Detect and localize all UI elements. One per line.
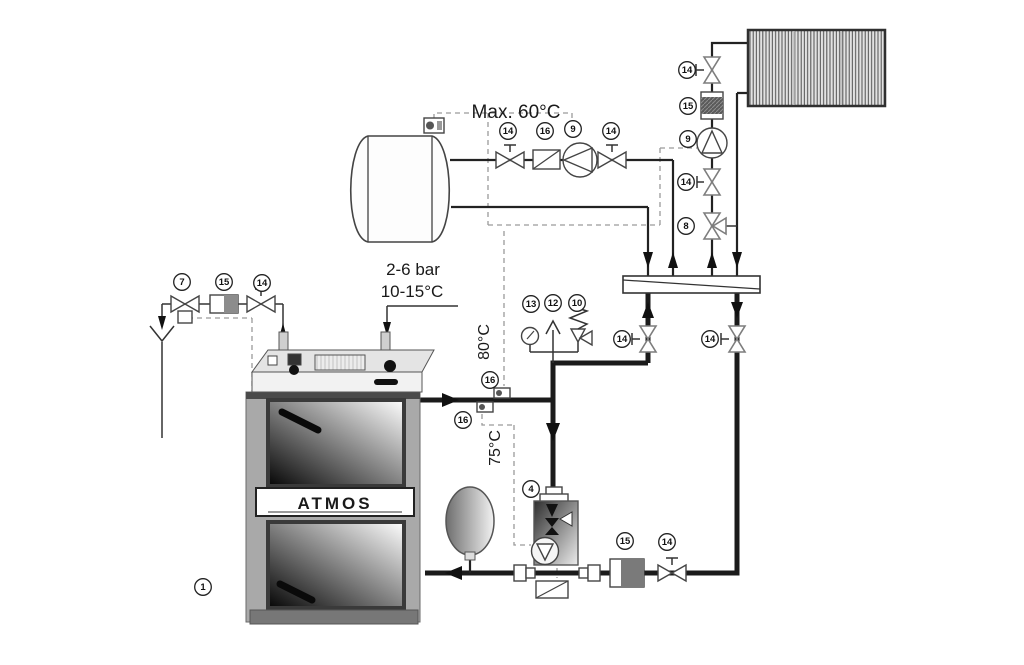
svg-text:1: 1 (200, 582, 206, 593)
laddomat-flow-arrow (546, 423, 560, 441)
supply-to-separator-pipe (553, 292, 648, 400)
svg-text:15: 15 (683, 101, 694, 112)
separator-valve-supply (632, 326, 656, 352)
svg-text:4: 4 (528, 484, 534, 495)
component-label: 16 (455, 412, 472, 429)
boiler-brand-text: ATMOS (297, 494, 372, 513)
component-label: 9 (680, 131, 697, 148)
component-label: 15 (680, 98, 697, 115)
svg-text:13: 13 (526, 299, 537, 310)
pressure-gauge (522, 328, 539, 345)
component-label: 14 (603, 123, 620, 140)
component-label: 13 (523, 296, 540, 313)
svg-text:14: 14 (257, 278, 268, 289)
supply-temp-sensor (494, 388, 510, 398)
radiator-shutoff-valve-top (696, 57, 720, 83)
tank-return-arrow (643, 252, 653, 268)
svg-text:14: 14 (606, 126, 617, 137)
supply-flow-arrow (442, 393, 459, 407)
separator-out-arrow (731, 302, 743, 318)
radiator-shutoff-valve-mid (697, 169, 720, 195)
heating-schematic-page: ATMOS (0, 0, 1024, 660)
svg-text:9: 9 (570, 124, 575, 135)
max-temp-label: Max. 60°C (472, 102, 561, 123)
atmos-nameplate: ATMOS (256, 488, 414, 516)
component-label: 7 (174, 274, 191, 291)
dhw-shutoff-valve-left (496, 145, 524, 168)
supply-temp-label: 80°C (476, 324, 493, 360)
component-label: 4 (523, 481, 540, 498)
component-label: 15 (216, 274, 233, 291)
tank-return-pipe (451, 207, 648, 276)
return-flow-arrow (445, 566, 462, 580)
component-label: 14 (254, 275, 271, 292)
component-label: 12 (545, 295, 562, 312)
hydraulic-separator (623, 276, 760, 293)
cold-water-pipe (387, 306, 458, 322)
expansion-vessel (446, 487, 494, 560)
component-label: 8 (678, 218, 695, 235)
return-temp-sensor (477, 402, 493, 412)
tank-supply-pipe (450, 160, 673, 276)
separator-in-arrow (642, 302, 654, 318)
return-line-filter (610, 559, 644, 587)
laddomat-unit (514, 487, 600, 598)
cooling-loop-group (150, 289, 275, 341)
boiler-door-upper (268, 400, 404, 486)
svg-text:16: 16 (458, 415, 469, 426)
cooling-loop-filter (210, 295, 238, 313)
svg-text:15: 15 (219, 277, 230, 288)
component-label: 14 (678, 174, 695, 191)
storage-tank (351, 118, 450, 242)
cooling-loop-valve (171, 296, 199, 323)
svg-text:7: 7 (179, 277, 184, 288)
panel-switch (268, 356, 277, 365)
component-label: 10 (569, 295, 586, 312)
svg-text:12: 12 (548, 298, 559, 309)
svg-text:14: 14 (682, 65, 693, 76)
tank-supply-arrow (668, 252, 678, 268)
component-label: 9 (565, 121, 582, 138)
radiator-return-arrow (732, 252, 742, 268)
svg-text:10: 10 (572, 298, 583, 309)
laddomat-cartridge (536, 581, 568, 598)
radiator-filter (701, 92, 723, 119)
boiler-control-panel (252, 350, 434, 392)
radiator-pump (697, 128, 727, 158)
component-label: 15 (617, 533, 634, 550)
svg-text:16: 16 (485, 375, 496, 386)
svg-text:8: 8 (683, 221, 688, 232)
panel-display (315, 355, 365, 370)
laddomat-port-right (588, 565, 600, 581)
return-temp-label: 75°C (487, 430, 504, 466)
dhw-shutoff-valve-right (598, 145, 626, 168)
svg-text:14: 14 (617, 334, 628, 345)
radiator-return-pipe (737, 93, 748, 276)
svg-text:14: 14 (705, 334, 716, 345)
laddomat-port-left (514, 565, 526, 581)
component-label: 14 (614, 331, 631, 348)
panel-knob-left (289, 365, 299, 375)
tank-temp-sensor (424, 118, 444, 133)
laddomat-pump (532, 538, 559, 565)
cold-water-label: 10-15°C (381, 282, 444, 301)
component-label: 1 (195, 579, 212, 596)
svg-text:14: 14 (503, 126, 514, 137)
panel-knob-right (384, 360, 396, 372)
component-label: 14 (659, 534, 676, 551)
svg-text:14: 14 (662, 537, 673, 548)
separator-valve-return (721, 326, 745, 352)
component-label: 14 (702, 331, 719, 348)
svg-text:15: 15 (620, 536, 631, 547)
panel-indicator (288, 354, 301, 365)
safety-valve (570, 307, 592, 345)
pressure-label: 2-6 bar (386, 260, 440, 279)
mixing-valve-3way (704, 213, 726, 239)
svg-text:9: 9 (685, 134, 690, 145)
svg-text:14: 14 (681, 177, 692, 188)
boiler: ATMOS (246, 332, 434, 624)
drain-arrow (158, 316, 166, 330)
radiator-supply-arrow (707, 252, 717, 268)
radiator (748, 30, 885, 106)
component-label: 16 (537, 123, 554, 140)
return-line-valve (658, 558, 686, 581)
boiler-door-lower (268, 522, 404, 608)
piping-diagram: ATMOS (0, 0, 1024, 660)
cooling-shutoff-valve (247, 289, 275, 312)
component-label: 16 (482, 372, 499, 389)
boiler-base (250, 610, 418, 624)
component-label: 14 (500, 123, 517, 140)
dhw-check-valve (533, 150, 560, 169)
component-label: 14 (679, 62, 696, 79)
dhw-circulation-pump (563, 143, 597, 177)
svg-text:16: 16 (540, 126, 551, 137)
